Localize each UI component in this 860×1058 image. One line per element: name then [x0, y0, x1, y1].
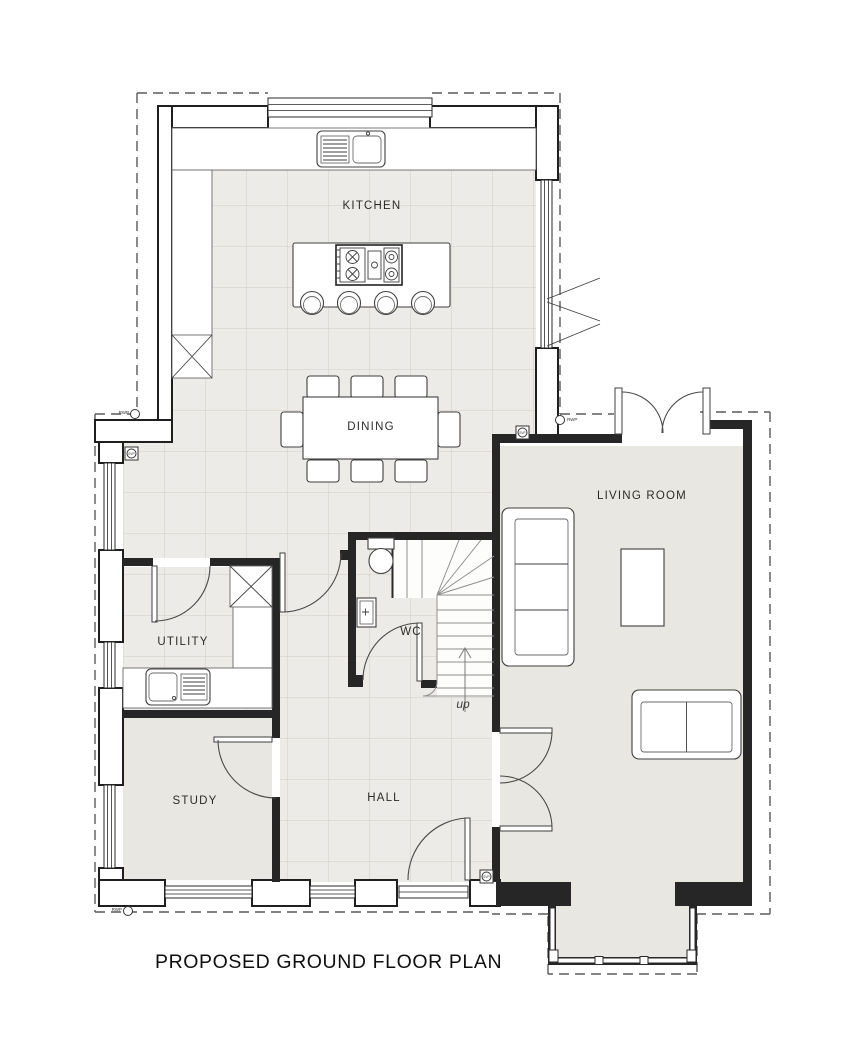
dining-chair: [307, 376, 339, 398]
floor-plan-drawing: [0, 0, 860, 1058]
utility-east-wall: [272, 558, 280, 712]
room-label-hall: HALL: [367, 792, 401, 804]
dining-chair: [281, 412, 303, 447]
dining-chair: [438, 412, 460, 447]
utility-counter-east: [233, 607, 272, 668]
dining-chair: [351, 460, 383, 482]
west-pier-3: [99, 688, 123, 785]
kitchen-north-window: [268, 98, 432, 117]
kitchen-east-wall-upper: [536, 106, 558, 180]
utility-study-divider-wall: [123, 710, 280, 718]
kitchen-east-window: [541, 180, 552, 348]
dining-chair: [395, 460, 427, 482]
kitchen-east-wall-lower: [536, 348, 558, 438]
svp-label: SVP: [516, 431, 529, 435]
coffee-table: [621, 549, 664, 626]
kitchen-counter-west: [172, 170, 212, 335]
wc-south-wall-left: [348, 675, 363, 687]
sofa-three-seat: [502, 508, 574, 666]
rwp-label: RWP: [92, 907, 122, 912]
rwp-label: RWP: [99, 410, 129, 415]
utility-sink: [146, 669, 210, 705]
kitchen-sink: [317, 131, 385, 167]
wash-basin: [357, 598, 376, 627]
room-label-utility: UTILITY: [157, 636, 208, 648]
utility-tall-unit: [230, 566, 272, 607]
drawing-title: PROPOSED GROUND FLOOR PLAN: [155, 951, 502, 974]
kitchen-bifold-opening: [547, 278, 600, 346]
west-window-utility: [104, 642, 115, 688]
room-label-wc: WC: [400, 626, 422, 638]
west-step-wall: [95, 420, 172, 442]
french-doors: [615, 388, 710, 434]
sofa-two-seat: [632, 690, 741, 759]
living-room-east-wall: [743, 420, 752, 882]
south-pier-3: [355, 880, 397, 906]
rwp-label: RWP: [567, 417, 577, 422]
front-door-threshold: [399, 886, 468, 898]
living-room-west-wall-upper: [492, 434, 500, 732]
south-window-hall: [310, 886, 355, 898]
rwp-marker: [124, 907, 133, 916]
dining-chair: [395, 376, 427, 398]
kitchen-north-wall-left: [158, 106, 268, 128]
south-pier-4: [470, 880, 500, 906]
utility-north-wall-right: [210, 558, 282, 566]
kitchen-west-wall: [158, 106, 172, 422]
west-window-study: [104, 785, 115, 868]
west-pier-2: [99, 550, 123, 642]
range-hob: [336, 245, 402, 285]
room-label-dining: DINING: [347, 421, 394, 433]
floor-plan-page: KITCHEN DINING LIVING ROOM UTILITY WC ST…: [0, 0, 860, 1058]
stairs-up-label: up: [456, 697, 469, 711]
toilet: [368, 538, 394, 574]
wc-south-wall-right: [421, 680, 437, 688]
room-label-study: STUDY: [173, 795, 218, 807]
room-label-kitchen: KITCHEN: [343, 200, 402, 212]
svp-label: SVP: [480, 875, 493, 879]
room-label-living-room: LIVING ROOM: [597, 490, 687, 502]
stair-core-west-wall: [348, 532, 356, 687]
svp-label: SVP: [125, 452, 138, 456]
west-window-1: [104, 463, 115, 550]
utility-north-wall-left: [123, 558, 153, 566]
bay-window-floor: [556, 882, 689, 958]
living-room-north-wall-left: [492, 434, 622, 443]
study-east-wall-upper: [272, 718, 280, 738]
south-window-study: [165, 886, 252, 898]
rwp-marker: [131, 410, 140, 419]
dining-chair: [351, 376, 383, 398]
south-pier-1: [99, 880, 165, 906]
dining-chair: [307, 460, 339, 482]
west-pier-1: [99, 442, 123, 463]
kitchen-tall-unit: [172, 335, 212, 378]
living-room-south-wall-right: [675, 882, 752, 906]
living-room-south-wall-left: [496, 882, 571, 906]
south-pier-2: [252, 880, 310, 906]
rwp-marker: [556, 416, 565, 425]
study-east-wall-lower: [272, 797, 280, 882]
